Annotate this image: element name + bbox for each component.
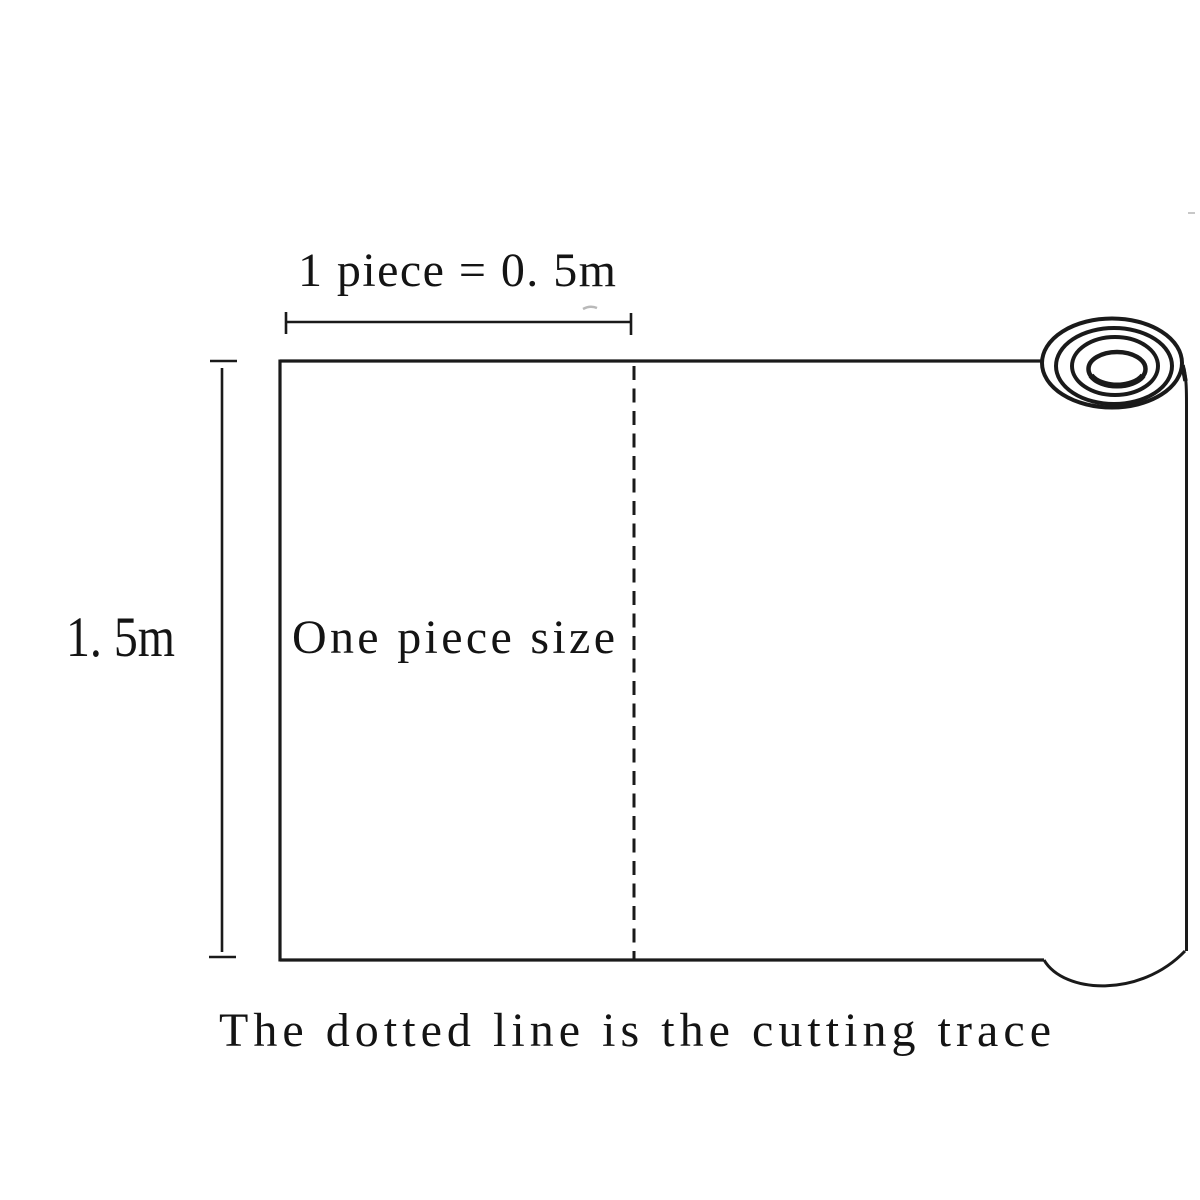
svg-text:1 piece = 0. 5m: 1 piece = 0. 5m	[298, 244, 616, 297]
svg-text:The dotted line is the cutting: The dotted line is the cutting trace	[219, 1004, 1051, 1057]
svg-text:1. 5m: 1. 5m	[66, 606, 175, 669]
